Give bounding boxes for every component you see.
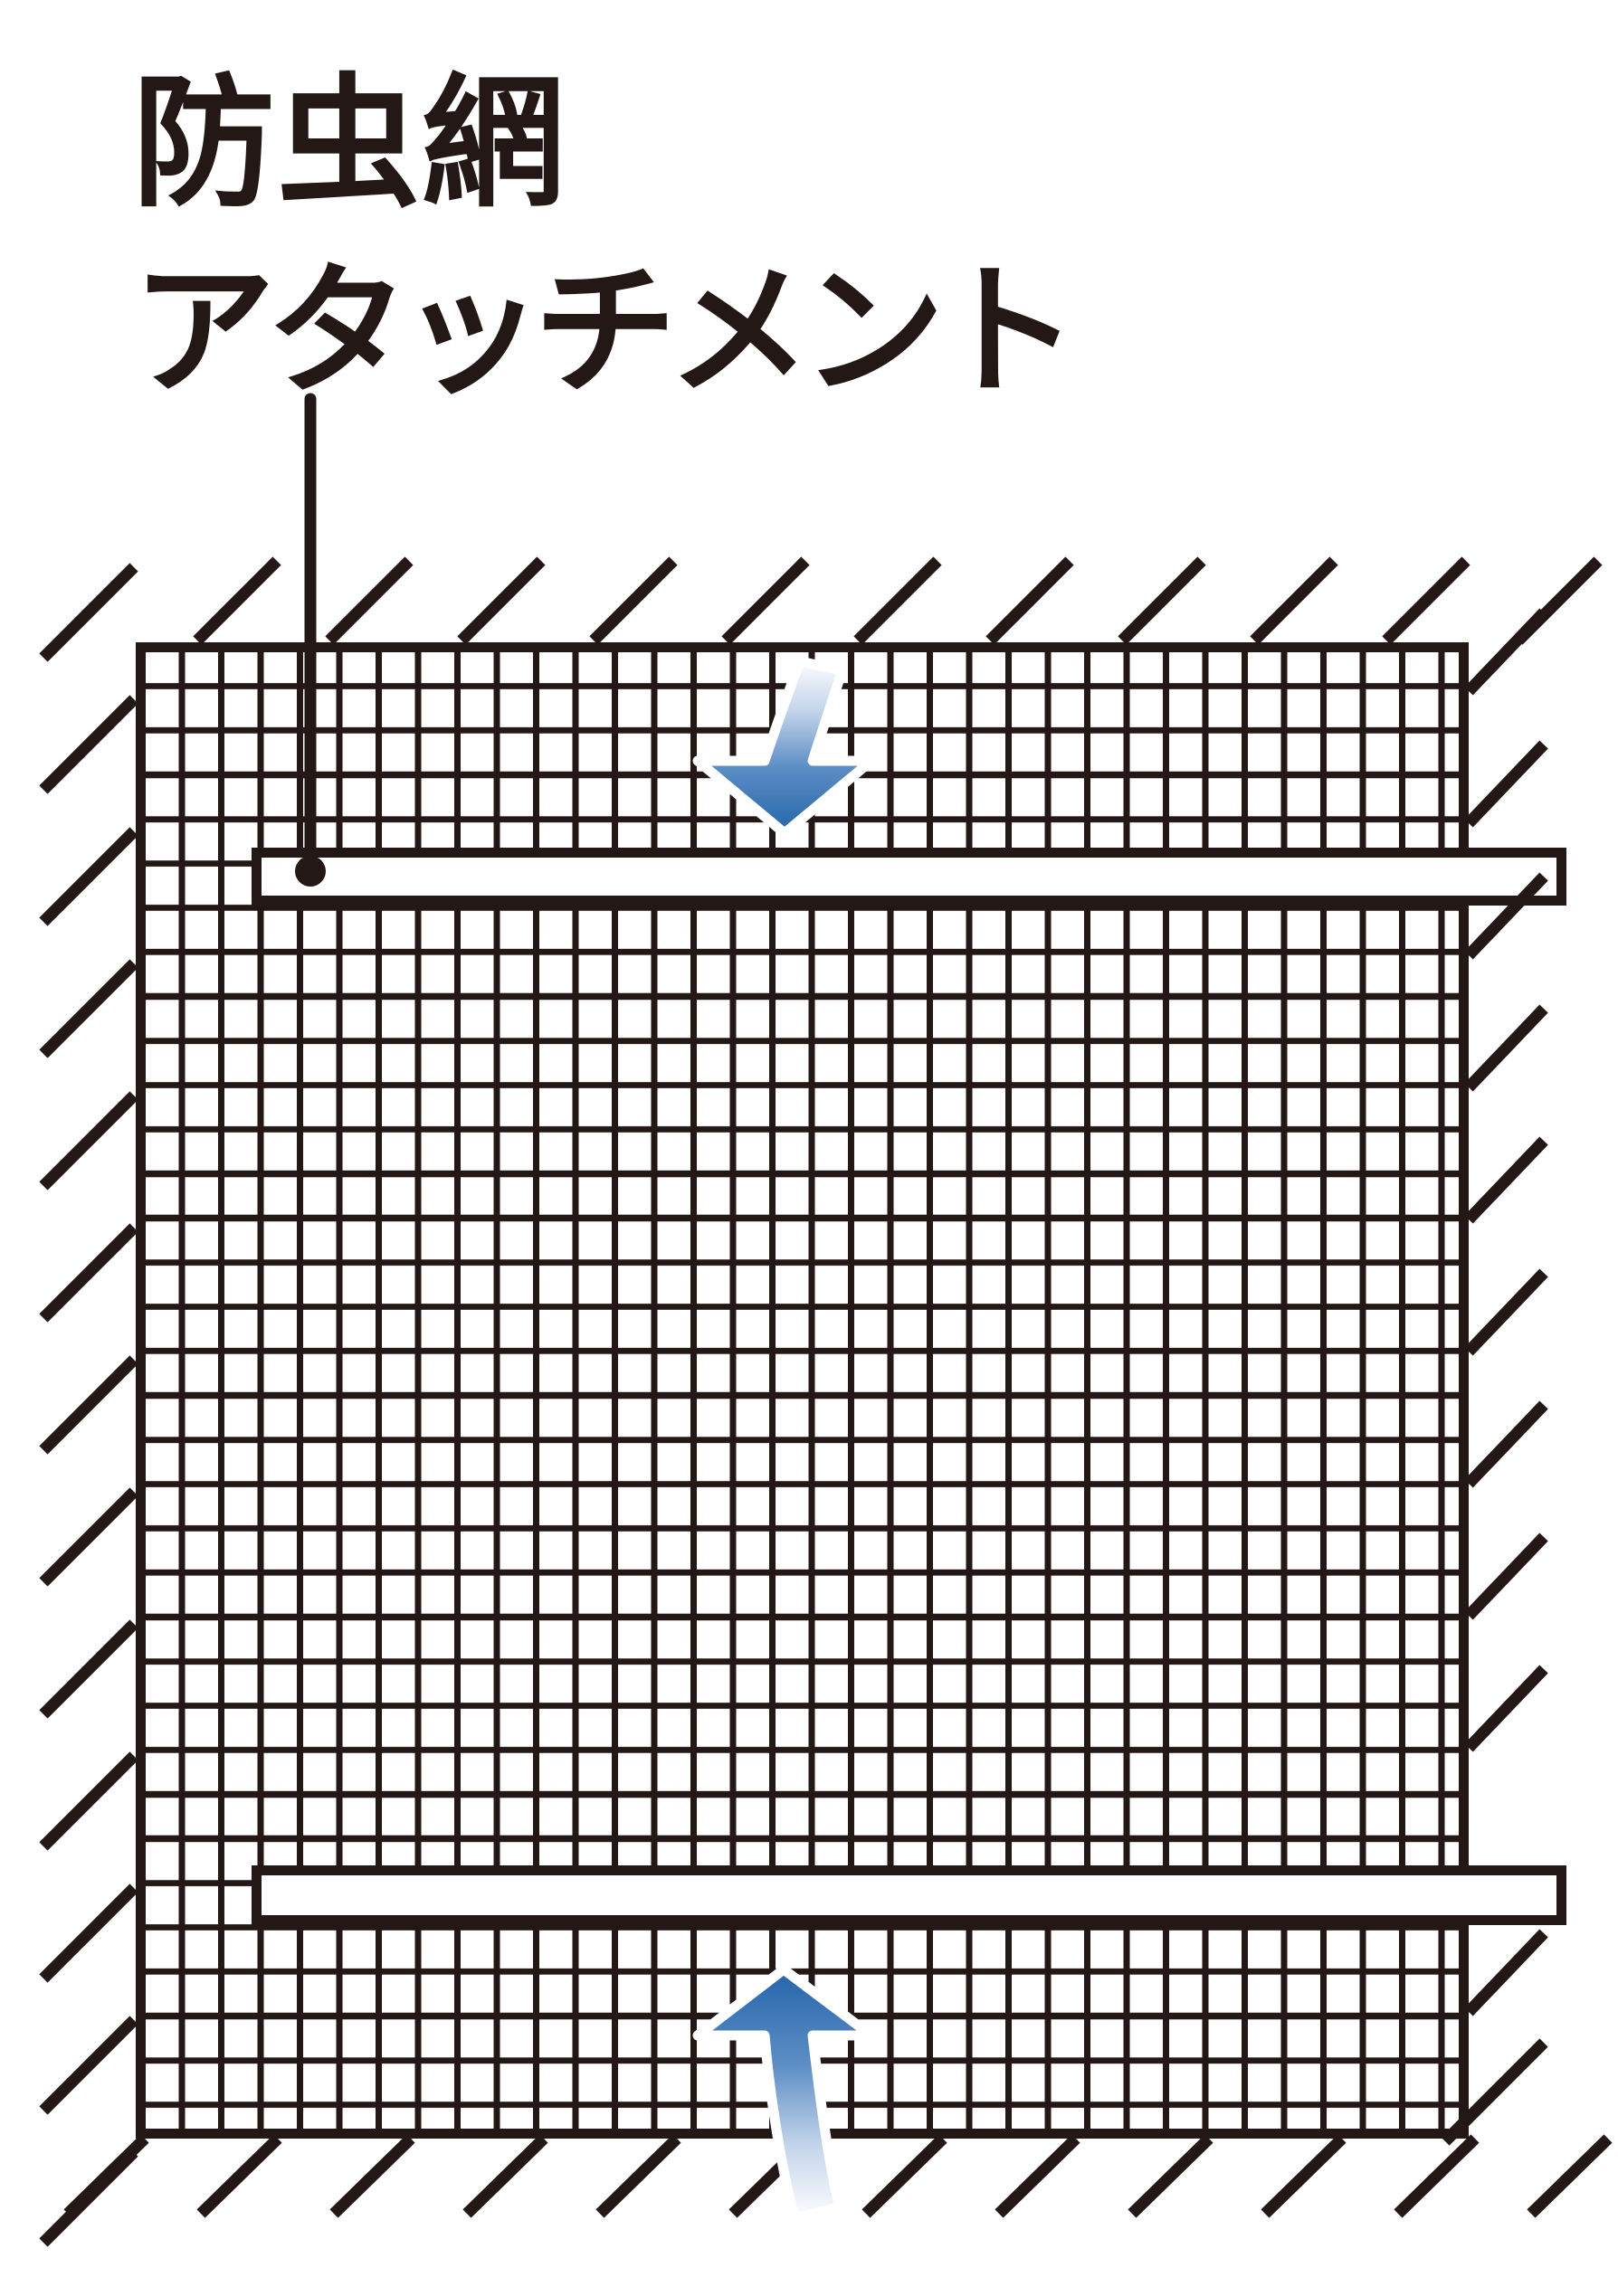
attachment-bar-top	[252, 848, 1566, 906]
diagram-canvas: 防虫網 アタッチメント	[0, 0, 1618, 2296]
title-line-2: アタッチメント	[132, 215, 1070, 422]
attachment-bar-bottom	[252, 1865, 1566, 1925]
title-line-1: 防虫網	[132, 27, 566, 234]
